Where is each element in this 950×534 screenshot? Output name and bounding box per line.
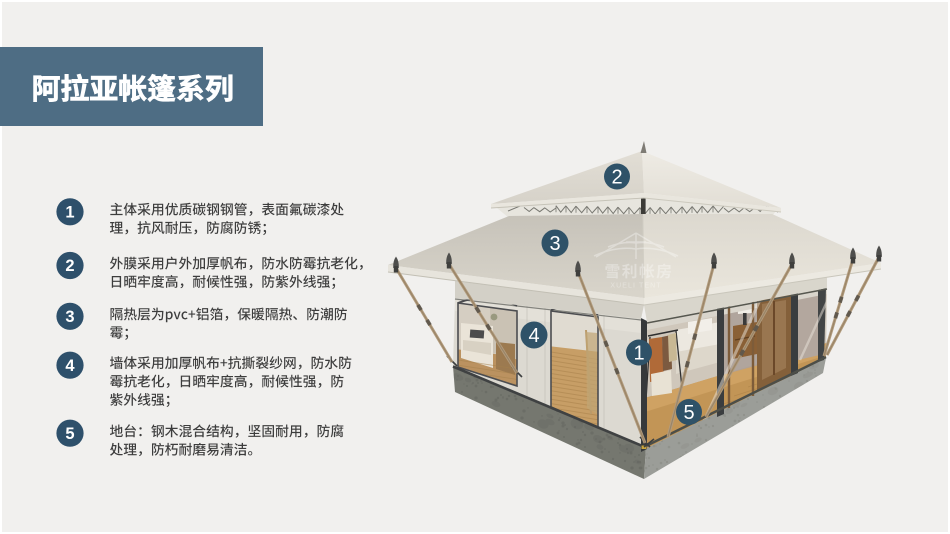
svg-text:5: 5 bbox=[683, 402, 694, 424]
svg-text:1: 1 bbox=[633, 342, 644, 364]
svg-text:3: 3 bbox=[65, 308, 74, 326]
svg-text:XUELI TENT: XUELI TENT bbox=[610, 283, 661, 290]
svg-text:1: 1 bbox=[65, 203, 74, 221]
svg-text:3: 3 bbox=[549, 233, 560, 255]
svg-text:4: 4 bbox=[65, 357, 75, 375]
svg-text:4: 4 bbox=[528, 325, 539, 347]
svg-text:2: 2 bbox=[611, 166, 622, 188]
svg-text:5: 5 bbox=[65, 425, 74, 443]
svg-text:2: 2 bbox=[65, 257, 74, 275]
